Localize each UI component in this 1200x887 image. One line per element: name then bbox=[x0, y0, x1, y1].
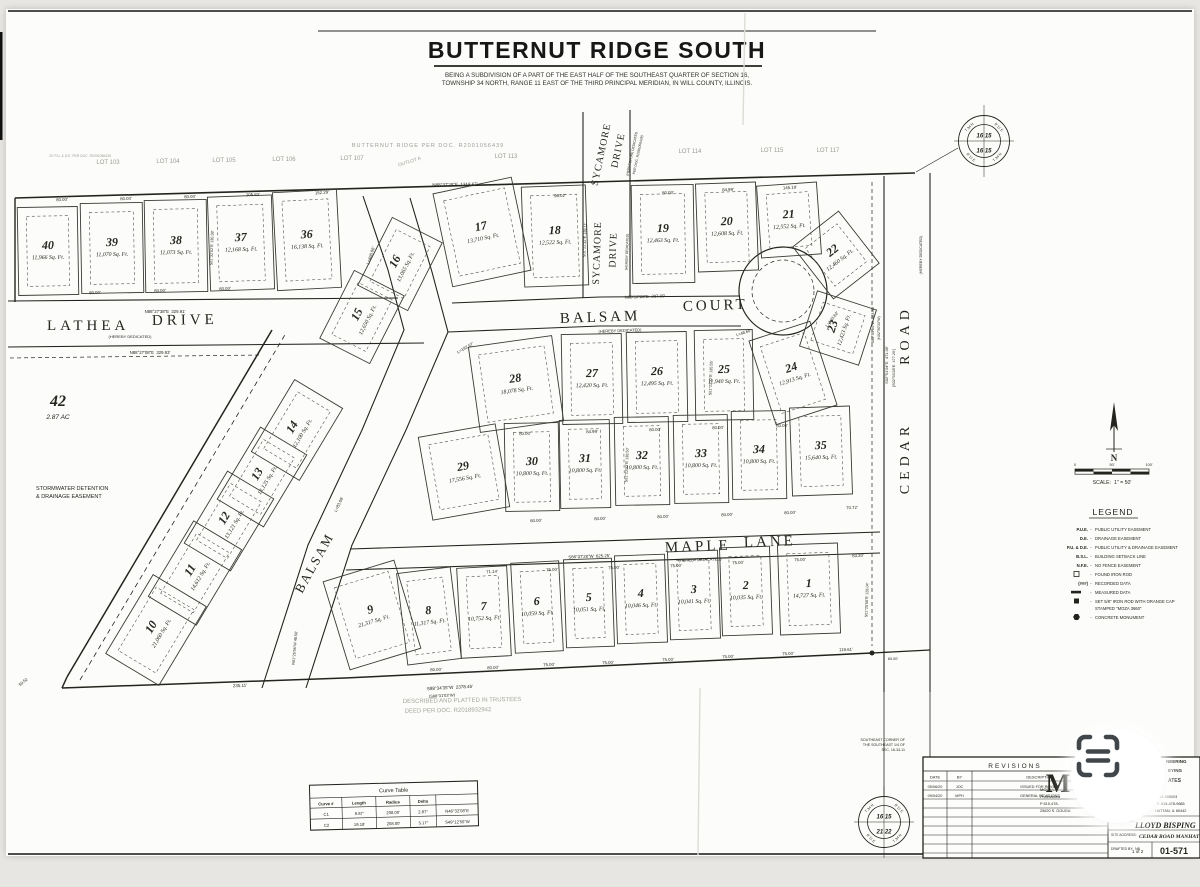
lot-number: 17 bbox=[473, 218, 489, 234]
lot-8: 811,317 Sq. Ft. bbox=[397, 567, 462, 665]
lot-number: 2 bbox=[742, 578, 749, 592]
lot-area: 15,640 Sq. Ft. bbox=[805, 453, 838, 461]
lot-6: 610,059 Sq. Ft. bbox=[511, 561, 564, 653]
revisions-cell: 09/04/20 bbox=[928, 794, 943, 798]
revisions-cell: 05/06/20 bbox=[928, 785, 943, 789]
lot-17: 1713,710 Sq. Ft. bbox=[433, 177, 531, 287]
map-label: 84.99' bbox=[586, 429, 598, 434]
lot-area: 10,059 Sq. Ft. bbox=[521, 610, 554, 618]
scan-text-overlay-button[interactable] bbox=[1071, 729, 1165, 823]
outlot-number: 42 bbox=[49, 393, 66, 410]
scan-corner-br bbox=[1106, 764, 1117, 775]
lot-number: 37 bbox=[234, 230, 248, 244]
lot-number: 40 bbox=[41, 238, 54, 252]
measured-data-symbol bbox=[1071, 591, 1081, 594]
map-label: S02°51'04"W 563.80' bbox=[871, 306, 875, 343]
curve-table-cell: 19.18' bbox=[354, 822, 366, 827]
map-label: 80.00' bbox=[487, 665, 499, 670]
legend-dash: - bbox=[1090, 554, 1092, 559]
map-label: 80.00' bbox=[184, 194, 196, 199]
lot-40: 4011,966 Sq. Ft. bbox=[17, 206, 79, 295]
map-label: 75.00' bbox=[608, 565, 620, 570]
map-label: 75.00' bbox=[782, 651, 794, 656]
lot-18: 1812,522 Sq. Ft. bbox=[521, 185, 588, 287]
curve-table-header: Length bbox=[352, 800, 367, 805]
lot-number: 27 bbox=[585, 366, 599, 380]
firm-name: NEERING bbox=[1166, 759, 1187, 764]
curve-table-cell: 208.00' bbox=[386, 810, 400, 815]
legend-desc: RECORDED DATA bbox=[1095, 581, 1131, 586]
firm-name: ATES bbox=[1168, 778, 1182, 784]
concrete-monument-symbol bbox=[1073, 614, 1080, 620]
map-label: 71.14' bbox=[486, 569, 498, 574]
revisions-title: REVISIONS bbox=[988, 763, 1041, 770]
map-label: L=83.09' bbox=[333, 496, 345, 513]
revisions-header: BY bbox=[957, 775, 963, 780]
curve-table-header: Radius bbox=[386, 799, 401, 804]
map-label: 80.00' bbox=[430, 667, 442, 672]
lot-number: 38 bbox=[169, 233, 182, 247]
firm-address: MOZA \ bbox=[1040, 787, 1054, 792]
map-label: 152.29' bbox=[315, 190, 329, 196]
scan-text-icon bbox=[1071, 729, 1125, 783]
map-label: (HEREBY DEDICATED) bbox=[624, 234, 629, 271]
fold-line bbox=[743, 13, 745, 125]
lot-30: 3010,800 Sq. Ft. bbox=[504, 423, 560, 512]
map-label: 75.00' bbox=[602, 660, 614, 665]
job-number: 01-571 bbox=[1160, 846, 1188, 856]
map-label: 75.00' bbox=[732, 560, 744, 565]
legend-dash: - bbox=[1090, 599, 1092, 604]
map-label: 59.52 bbox=[18, 676, 29, 687]
lot-number: 5 bbox=[586, 590, 592, 604]
balsam-east-edge bbox=[410, 198, 448, 332]
firm-address: Professiona bbox=[1040, 795, 1061, 799]
curve-table-cell: 5.17° bbox=[418, 820, 428, 825]
curve-table-cell: 2.87° bbox=[418, 809, 428, 814]
street-name-balsam: BALSAM bbox=[560, 308, 641, 327]
map-label: N88°37'28"E 297.00' bbox=[625, 293, 666, 299]
lot-area: 12,420 Sq. Ft. bbox=[576, 382, 609, 390]
street-name-sycamore: SYCAMORE bbox=[591, 221, 604, 285]
lot-number: 13 bbox=[248, 465, 266, 482]
curve-table-title: Curve Table bbox=[379, 788, 408, 795]
revisions-cell: MPH bbox=[955, 794, 964, 798]
map-label: N88°37'28"E 1318.67' bbox=[432, 182, 477, 188]
map-label: 80.00' bbox=[776, 423, 788, 428]
map-label: DRIVE bbox=[607, 232, 619, 268]
scale-tick: 100' bbox=[1145, 463, 1152, 467]
map-label: (N02°50'33"W) bbox=[877, 316, 881, 340]
legend-desc: FOUND IRON ROD bbox=[1095, 572, 1132, 577]
map-label: (S02°53'28"E 477.20') bbox=[892, 348, 896, 387]
map-label: 80.00' bbox=[154, 288, 166, 293]
map-label: 80.00' bbox=[120, 196, 132, 201]
lot-area: 11,317 Sq. Ft. bbox=[413, 618, 446, 628]
legend-desc: NO FENCE EASEMENT bbox=[1095, 563, 1141, 568]
scan-corner-bl bbox=[1079, 764, 1090, 775]
legend-desc: PUBLIC UTILITY EASEMENT bbox=[1095, 527, 1151, 532]
legend-dash: - bbox=[1090, 563, 1092, 568]
lot-35: 3515,640 Sq. Ft. bbox=[789, 406, 852, 496]
lot-area: 21,317 Sq. Ft. bbox=[358, 614, 391, 629]
lot-4: 410,046 Sq. Ft. bbox=[614, 554, 667, 644]
lot-number: 11 bbox=[181, 561, 199, 578]
firm-name: EYING bbox=[1168, 768, 1183, 773]
lot-area: 12,168 Sq. Ft. bbox=[225, 246, 258, 253]
adjacent-lot-label: LOT 103 bbox=[96, 160, 120, 166]
lot-area: 17,556 Sq. Ft. bbox=[449, 473, 482, 485]
street-name-road: ROAD bbox=[898, 305, 913, 365]
scale-bar-segment bbox=[1112, 469, 1131, 472]
legend-abbr: D.E. bbox=[1080, 536, 1088, 541]
lot-7: 710,752 Sq. Ft. bbox=[457, 566, 512, 658]
adjacent-lot-label: LOT 115 bbox=[761, 148, 784, 154]
map-label: (HEREBY DEDICATED) bbox=[678, 556, 722, 563]
map-label: 75.00' bbox=[794, 557, 806, 562]
map-label: 80.00' bbox=[530, 518, 542, 523]
legend-dash: - bbox=[1090, 527, 1092, 532]
lot-number: 10 bbox=[142, 618, 160, 635]
boundary-south bbox=[62, 678, 345, 688]
north-label: N bbox=[1111, 453, 1118, 463]
lot-number: 31 bbox=[578, 451, 591, 465]
lot-number: 25 bbox=[717, 362, 730, 376]
firm-address: HATTAN, IL 60442 bbox=[1155, 809, 1186, 813]
lot-32: 3210,800 Sq. Ft. bbox=[614, 417, 670, 506]
lot-37: 3712,168 Sq. Ft. bbox=[207, 195, 274, 291]
stormwater-note: STORMWATER DETENTION bbox=[36, 486, 108, 492]
street-name-lathea: LATHEA bbox=[47, 318, 129, 334]
legend-abbr: P.U. & D.E. bbox=[1067, 545, 1088, 550]
page-title: BUTTERNUT RIDGE SOUTH bbox=[428, 37, 766, 63]
firm-address: F. 815-478-9685 bbox=[1157, 802, 1185, 806]
map-label: 80.00' bbox=[712, 425, 724, 430]
lot-number: 7 bbox=[480, 599, 488, 613]
map-label: 60.00' bbox=[888, 657, 899, 661]
street-name-court: COURT bbox=[683, 297, 748, 315]
lot-area: 10,800 Sq. Ft. bbox=[626, 465, 659, 472]
lot-number: 8 bbox=[424, 603, 432, 618]
legend-abbr: (###) bbox=[1078, 581, 1088, 586]
legend-desc: BUILDING SETBACK LINE bbox=[1095, 554, 1146, 559]
lot-21: 2112,552 Sq. Ft. bbox=[757, 182, 822, 258]
scale-tick: 0 bbox=[1074, 463, 1076, 467]
cul-de-sac-setback bbox=[752, 260, 814, 322]
lot-10: 1021,060 Sq. Ft. bbox=[106, 575, 207, 686]
lot-area: 11,966 Sq. Ft. bbox=[32, 255, 64, 262]
township-label: T 34 N bbox=[892, 833, 903, 844]
legend-dash: - bbox=[1090, 581, 1092, 586]
balsam-east-edge bbox=[306, 332, 448, 688]
site-address-value: CEDAR ROAD MANHATTAN, IL bbox=[1139, 834, 1200, 840]
lot-area: 12,608 Sq. Ft. bbox=[711, 230, 744, 237]
lot-number: 6 bbox=[533, 594, 540, 608]
scale-bar-segment bbox=[1075, 469, 1094, 472]
legend-dash: - bbox=[1090, 545, 1092, 550]
plat-drawing: BUTTERNUT RIDGE SOUTH BEING A SUBDIVISIO… bbox=[0, 0, 1200, 887]
firm-address: 25620 S. GOUGA bbox=[1040, 809, 1071, 813]
adjacent-lot-label: LOT 117 bbox=[817, 148, 840, 154]
curve-table-cell: S49°12'50"W bbox=[445, 819, 470, 825]
lot-number: 34 bbox=[752, 442, 765, 456]
lot-area: 11,073 Sq. Ft. bbox=[160, 250, 192, 257]
lot-36: 3616,138 Sq. Ft. bbox=[272, 189, 341, 290]
lot-number: 16 bbox=[386, 253, 404, 270]
corner-note: SOUTHEAST CORNER OF bbox=[861, 738, 906, 742]
lot-number: 30 bbox=[525, 454, 538, 468]
map-label: 84.99' bbox=[722, 187, 734, 192]
map-label: 20' P.U. & D.E. PER DOC. R2001056439 bbox=[49, 154, 111, 158]
lot-19: 1912,463 Sq. Ft. bbox=[631, 184, 695, 283]
lot-number: 9 bbox=[365, 602, 375, 617]
lot-number: 18 bbox=[549, 223, 561, 237]
boundary-south bbox=[345, 653, 872, 678]
map-label: DRIVE bbox=[609, 132, 627, 169]
map-label: S01°25'56"E 128.04' bbox=[864, 582, 869, 617]
legend-abbr: B.S.L. bbox=[1076, 554, 1088, 559]
curve-table: Curve TableCurve #LengthRadiusDeltaC18.8… bbox=[309, 781, 478, 830]
curve-table-header: Curve # bbox=[318, 801, 334, 806]
lot-28: 2818,078 Sq. Ft. bbox=[468, 336, 563, 433]
lot-38: 3811,073 Sq. Ft. bbox=[144, 199, 208, 292]
lot-number: 36 bbox=[299, 227, 313, 242]
lot-number: 32 bbox=[635, 448, 648, 462]
map-label: L=48.60' bbox=[735, 328, 751, 338]
lot-area: 10,800 Sq. Ft. bbox=[685, 463, 718, 470]
lot-area: 10,800 Sq. Ft. bbox=[569, 468, 602, 475]
lot-area: 10,800 Sq. Ft. bbox=[743, 459, 776, 466]
scale-bar-segment bbox=[1131, 472, 1150, 475]
street-name-cedar: CEDAR bbox=[898, 422, 913, 494]
lot-5: 510,051 Sq. Ft. bbox=[563, 558, 614, 648]
lot-25: 2511,940 Sq. Ft. bbox=[694, 330, 754, 421]
street-name-lane: LANE bbox=[744, 533, 797, 551]
legend-dash: - bbox=[1090, 615, 1092, 620]
lot-number: 26 bbox=[650, 364, 663, 378]
map-label: 75.00' bbox=[543, 662, 555, 667]
curve-table-cell: 8.87' bbox=[355, 811, 364, 816]
street-name-balsam-diagonal: BALSAM bbox=[291, 530, 336, 595]
adjacent-lot-label: LOT 104 bbox=[156, 159, 180, 165]
lot-1: 114,727 Sq. Ft. bbox=[777, 543, 840, 635]
map-label: 80.00' bbox=[649, 427, 661, 432]
legend-abbr: P.U.E. bbox=[1076, 527, 1088, 532]
section-numbers: 16 15 bbox=[976, 149, 992, 155]
adjacent-lot-label: OUTLOT A bbox=[398, 155, 423, 168]
fold-line bbox=[698, 688, 700, 855]
map-label: L=460.06' bbox=[365, 246, 375, 265]
map-label: S02°51'04"E 471.06' bbox=[884, 346, 889, 384]
lot-number: 3 bbox=[690, 582, 697, 596]
stormwater-note: & DRAINAGE EASEMENT bbox=[36, 494, 102, 500]
maple-north-edge bbox=[350, 532, 880, 549]
lot-area: 12,913 Sq. Ft. bbox=[779, 372, 812, 388]
adjacent-lot-label: LOT 105 bbox=[212, 158, 236, 164]
map-label: 70.72' bbox=[846, 505, 858, 510]
legend-title: LEGEND bbox=[1093, 507, 1134, 517]
lot-26: 2612,495 Sq. Ft. bbox=[626, 331, 688, 422]
legend-dash: - bbox=[1090, 572, 1092, 577]
section-connector bbox=[916, 148, 958, 172]
legend-desc: STAMPED "MOZA 3660" bbox=[1095, 606, 1142, 611]
street-name-lathea-drive: DRIVE bbox=[152, 312, 218, 329]
map-label: 80.00' bbox=[657, 514, 669, 519]
lot-number: 4 bbox=[637, 586, 644, 600]
map-label: (HEREBY DEDICATED) bbox=[109, 334, 153, 339]
legend-desc: DRAINAGE EASEMENT bbox=[1095, 536, 1142, 541]
revisions-header: DATE bbox=[930, 775, 941, 780]
legend-dash: - bbox=[1090, 590, 1092, 595]
adjacent-lot-label: LOT 107 bbox=[340, 156, 364, 162]
map-label: 80.00' bbox=[519, 431, 531, 436]
lot-number: 29 bbox=[455, 458, 470, 474]
street-name-sycamore-north: SYCAMORE bbox=[590, 122, 614, 186]
lot-area: 14,727 Sq. Ft. bbox=[793, 591, 826, 599]
street-name-maple: MAPLE bbox=[665, 538, 731, 556]
legend-desc: MEASURED DATA bbox=[1095, 590, 1131, 595]
map-label: S88°34'35"W 2378.46' bbox=[427, 684, 473, 691]
map-label: N88°27'38"E 329.91' bbox=[145, 309, 186, 314]
legend-desc: CONCRETE MONUMENT bbox=[1095, 615, 1145, 620]
curve-table-cell: 208.00' bbox=[387, 821, 401, 826]
lot-number: 1 bbox=[806, 576, 812, 590]
map-label: 96.02' bbox=[554, 193, 566, 198]
map-label: 145.19' bbox=[783, 185, 797, 191]
trustees-note: DEED PER DOC. R2018932942 bbox=[405, 707, 492, 715]
boundary-jog bbox=[62, 677, 67, 688]
scale-caption: SCALE: 1" = 50' bbox=[1093, 480, 1132, 486]
ordered-by-value: LLOYD BISPING bbox=[1134, 821, 1196, 830]
map-label: 80.00' bbox=[784, 510, 796, 515]
lathea-south-edge bbox=[8, 343, 424, 347]
found-iron-rod-symbol bbox=[1074, 572, 1079, 577]
lot-area: 10,046 Sq. Ft. bbox=[625, 601, 658, 609]
firm-logo-letter: M bbox=[1046, 769, 1071, 798]
page-subtitle: TOWNSHIP 34 NORTH, RANGE 11 EAST OF THE … bbox=[442, 80, 753, 87]
range-label: R 11 E bbox=[865, 833, 876, 844]
section-numbers: 21 22 bbox=[875, 830, 892, 836]
range-label: R 11 E bbox=[965, 152, 976, 163]
map-label: 80.00' bbox=[594, 516, 606, 521]
map-label: S01°22'32"E 138.50' bbox=[624, 447, 629, 482]
map-label: S01°22'32"E 135.55' bbox=[708, 360, 713, 395]
map-label: 80.00' bbox=[219, 286, 231, 291]
section-numbers: 16 15 bbox=[876, 815, 892, 821]
map-label: S01°32'52"E 135.38' bbox=[209, 230, 214, 265]
map-label: L=182.57' bbox=[456, 341, 475, 355]
lot-number: 33 bbox=[694, 446, 707, 460]
lot-area: 10,041 Sq. Ft. bbox=[678, 597, 711, 605]
adjacent-lot-label: LOT 114 bbox=[679, 149, 702, 155]
map-label: 80.00' bbox=[89, 290, 101, 295]
map-label: 63.30' bbox=[852, 553, 864, 558]
lot-area: 11,070 Sq. Ft. bbox=[96, 252, 128, 259]
scale-tick: 50' bbox=[1110, 463, 1115, 467]
map-label: S01°22'32"E 139.11' bbox=[582, 222, 587, 257]
set-iron-rod-symbol bbox=[1074, 599, 1079, 604]
lot-area: 10,752 Sq. Ft. bbox=[468, 615, 501, 623]
lot-area: 12,552 Sq. Ft. bbox=[773, 223, 806, 231]
map-label: (HEREBY DEDICATED) bbox=[919, 236, 923, 275]
lot-number: 24 bbox=[782, 359, 799, 376]
firm-address: P 815-478- bbox=[1040, 802, 1059, 806]
lot-number: 14 bbox=[283, 418, 301, 435]
lot-31: 3110,800 Sq. Ft. bbox=[559, 420, 611, 509]
lathea-easement bbox=[10, 355, 262, 358]
map-label: N01°25'56"W 48.50' bbox=[292, 631, 299, 665]
trustees-note: DESCRIBED AND PLATTED IN TRUSTEES bbox=[403, 697, 522, 705]
lot-number: 28 bbox=[507, 370, 522, 386]
corner-note: THE SOUTHEAST 1/4 OF bbox=[863, 743, 906, 747]
lot-39: 3911,070 Sq. Ft. bbox=[80, 202, 144, 293]
lot-29: 2917,556 Sq. Ft. bbox=[418, 424, 509, 520]
lot-area: 12,522 Sq. Ft. bbox=[539, 239, 572, 246]
site-address-label: SITE ADDRESS: bbox=[1111, 833, 1137, 837]
township-label: T 34 N bbox=[992, 152, 1003, 163]
lot-number: 21 bbox=[781, 207, 795, 222]
lot-27: 2712,420 Sq. Ft. bbox=[561, 333, 623, 424]
lot-24: 2412,913 Sq. Ft. bbox=[749, 321, 837, 424]
map-label: 75.00' bbox=[670, 563, 682, 568]
lot-number: 19 bbox=[657, 221, 669, 235]
lot-number: 35 bbox=[814, 438, 827, 452]
curve-table-cell: C2 bbox=[324, 823, 330, 828]
plat-sheet-photo: BUTTERNUT RIDGE SOUTH BEING A SUBDIVISIO… bbox=[0, 0, 1200, 887]
lot-number: 39 bbox=[105, 235, 118, 249]
scan-corner-tl bbox=[1079, 737, 1090, 748]
lot-area: 10,051 Sq. Ft. bbox=[573, 606, 606, 613]
revisions-cell: JOC bbox=[956, 785, 964, 789]
map-label: 80.00' bbox=[721, 512, 733, 517]
adjacent-subdivision-label: BUTTERNUT RIDGE PER DOC. R2001056439 bbox=[352, 143, 504, 149]
corner-note: SEC. 16-34-11 bbox=[881, 748, 905, 752]
lot-20: 2012,608 Sq. Ft. bbox=[695, 182, 758, 272]
lot-number: 20 bbox=[720, 214, 733, 228]
map-label: 80.00' bbox=[662, 190, 674, 195]
adjacent-lot-label: LOT 113 bbox=[495, 154, 518, 160]
map-label: N88°27'08"E 329.93' bbox=[130, 350, 171, 355]
map-label: 75.00' bbox=[662, 657, 674, 662]
map-label: 75.00' bbox=[722, 654, 734, 659]
lot-number: 12 bbox=[215, 509, 233, 526]
scan-corner-tr bbox=[1106, 737, 1117, 748]
legend-desc: SET 5/8" IRON ROD WITH ORANGE CAP bbox=[1095, 599, 1175, 604]
curve-table-cell: C1 bbox=[323, 812, 329, 817]
curve-table-cell: N46°32'08"E bbox=[445, 808, 469, 814]
map-label: 105.83' bbox=[246, 192, 260, 197]
lot-area: 13,710 Sq. Ft. bbox=[467, 233, 500, 246]
legend-abbr: N.F.E. bbox=[1077, 563, 1088, 568]
lot-area: 16,138 Sq. Ft. bbox=[291, 243, 324, 251]
map-label: 80.00' bbox=[56, 197, 68, 202]
lot-area: 10,035 Sq. Ft. bbox=[730, 594, 763, 601]
lot-area: 18,078 Sq. Ft. bbox=[500, 386, 533, 396]
balsam-court-south-edge bbox=[448, 326, 741, 332]
curve-table-header: Delta bbox=[418, 799, 429, 804]
legend-desc: PUBLIC UTILITY & DRAINAGE EASEMENT bbox=[1095, 545, 1178, 550]
lot-area: 12,463 Sq. Ft. bbox=[647, 237, 680, 245]
lot-area: 12,495 Sq. Ft. bbox=[641, 380, 674, 388]
map-label: 235.11' bbox=[233, 683, 248, 689]
scale-bar-segment bbox=[1094, 472, 1113, 475]
lot-area: 10,800 Sq. Ft. bbox=[516, 471, 549, 478]
concrete-monument bbox=[870, 651, 875, 656]
outlot-area: 2.87 AC bbox=[45, 414, 70, 421]
boundary-south bbox=[872, 650, 930, 653]
sheet-number: 1 of 2 bbox=[1132, 849, 1144, 854]
section-numbers: 16 15 bbox=[976, 134, 992, 140]
